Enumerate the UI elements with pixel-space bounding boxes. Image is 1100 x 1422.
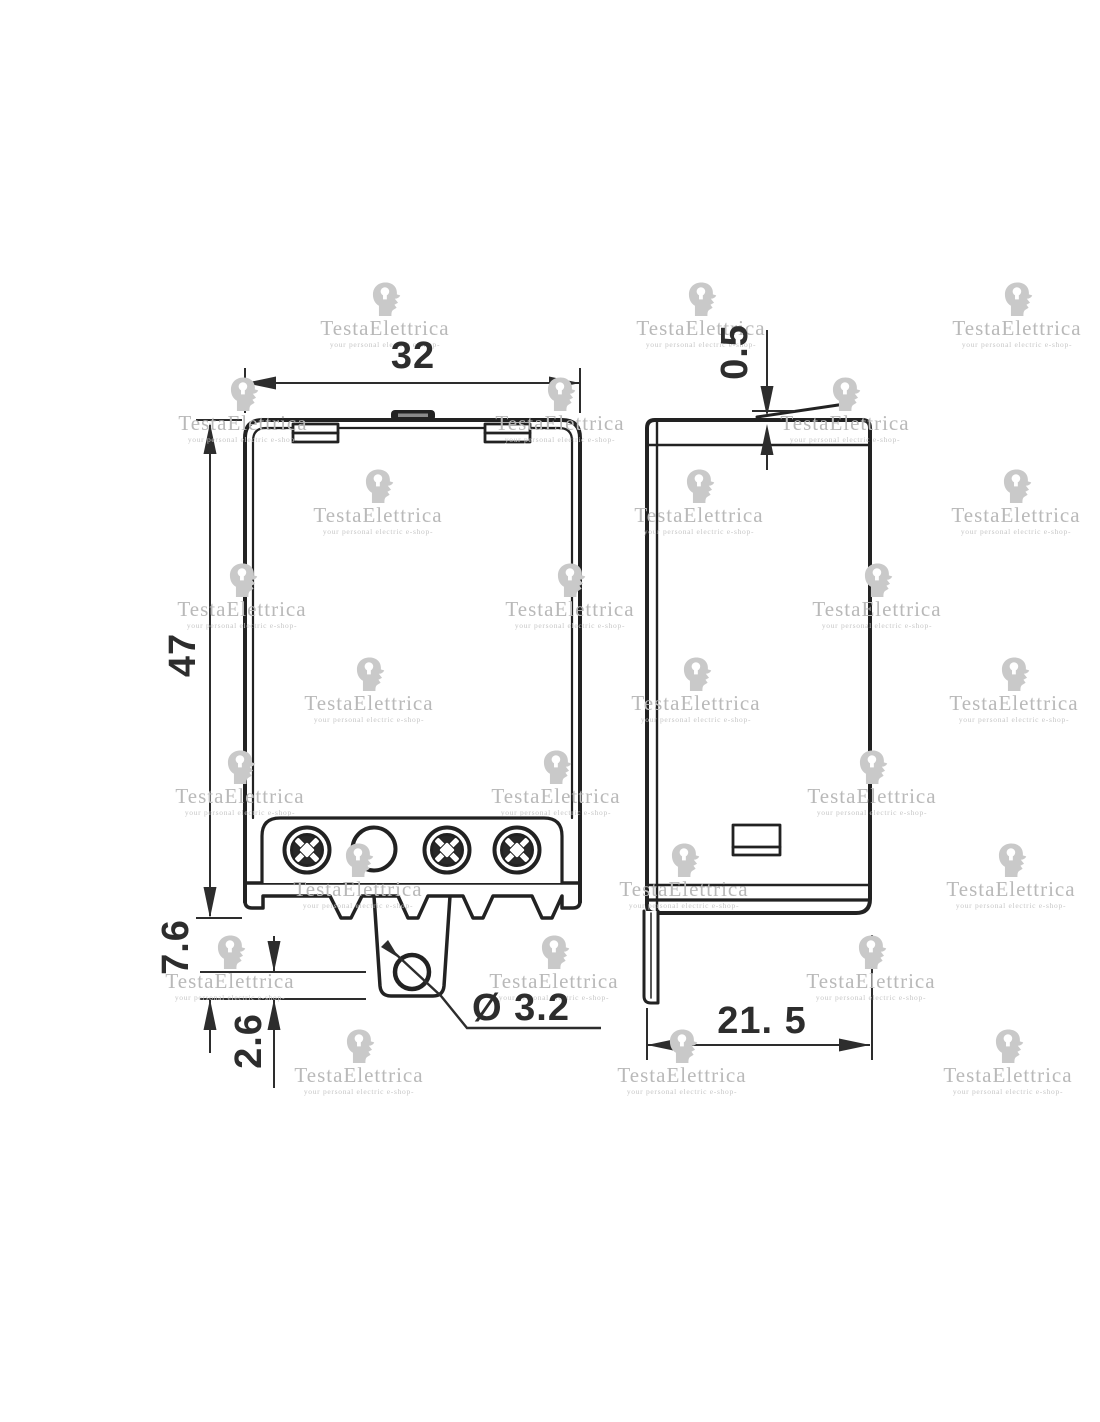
top-clip-right	[485, 424, 530, 442]
cable-hole	[353, 828, 396, 871]
technical-drawing	[0, 0, 1100, 1422]
front-view	[245, 410, 580, 996]
body-inner-line	[253, 428, 572, 818]
bottom-zigzag	[245, 883, 580, 918]
diagram-canvas: TestaElettricayour personal electric e-s…	[0, 0, 1100, 1422]
top-connector	[391, 410, 435, 421]
side-slot	[733, 825, 780, 855]
tab-hole	[395, 955, 429, 989]
side-view	[644, 404, 870, 1003]
top-clip-left	[293, 424, 338, 442]
